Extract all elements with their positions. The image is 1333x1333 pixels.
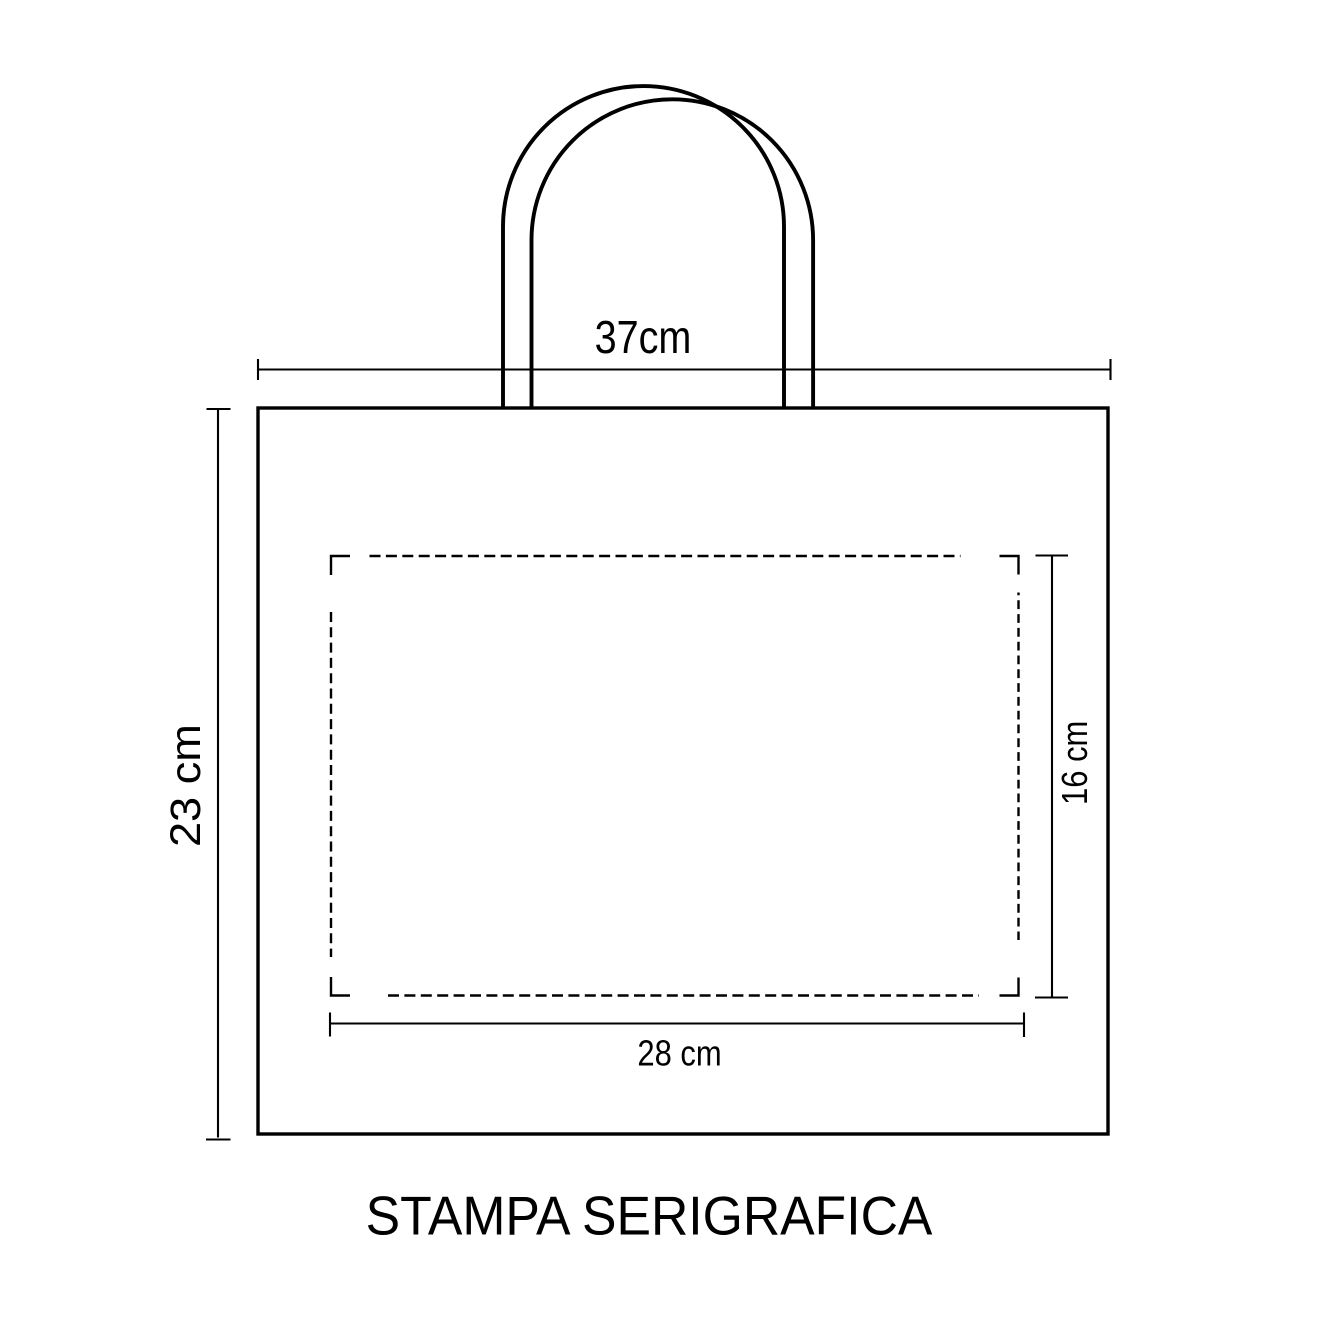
svg-text:23 cm: 23 cm [162, 724, 210, 847]
svg-text:16 cm: 16 cm [1056, 721, 1096, 805]
svg-text:28 cm: 28 cm [637, 1034, 721, 1074]
svg-text:37cm: 37cm [595, 312, 692, 363]
svg-text:STAMPA SERIGRAFICA: STAMPA SERIGRAFICA [366, 1186, 933, 1247]
